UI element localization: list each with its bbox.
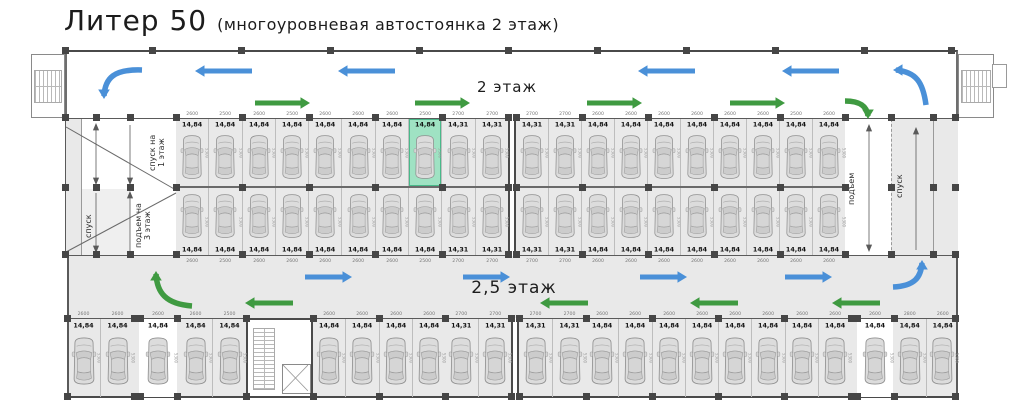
depth-dimension: 5300: [954, 353, 959, 363]
parking-spot[interactable]: 260014,845300: [581, 188, 614, 255]
car-icon: [651, 192, 677, 240]
spot-area-label: 14,84: [349, 322, 375, 329]
column: [505, 184, 512, 191]
parking-spot[interactable]: 260014,845300: [779, 188, 812, 255]
spot-area-label: 14,84: [213, 246, 239, 253]
column: [173, 251, 180, 258]
width-dimension: 2600: [349, 258, 368, 263]
parking-segment: 260014,845300250014,845300: [179, 319, 246, 397]
ramp-area-right: подъем спуск: [845, 119, 957, 255]
spot-area-label: 14,84: [213, 121, 239, 128]
column: [649, 393, 656, 400]
column: [930, 114, 937, 121]
width-dimension: 2600: [688, 258, 707, 263]
column: [137, 315, 144, 322]
column: [62, 114, 69, 121]
parking-spot[interactable]: 260014,845300: [647, 188, 680, 255]
width-dimension: 2500: [216, 258, 235, 263]
parking-row-lower-left: 260014,845300250014,845300260014,8453002…: [176, 188, 508, 255]
spot-area-label: 14,84: [750, 246, 776, 253]
column: [376, 315, 383, 322]
width-dimension: 2600: [820, 258, 839, 263]
spot-area-label: 14,84: [622, 322, 648, 329]
column: [62, 251, 69, 258]
spot-area-label: 14,31: [519, 246, 545, 253]
column: [930, 184, 937, 191]
width-dimension: 2600: [283, 258, 302, 263]
width-dimension: 2500: [787, 111, 806, 116]
parking-spot[interactable]: 270014,315300: [552, 319, 586, 397]
spot-area-label: 14,84: [346, 246, 372, 253]
parking-spot[interactable]: 260014,845300: [926, 319, 959, 397]
width-dimension: 2700: [485, 311, 504, 316]
parking-spot[interactable]: 260014,845300: [345, 319, 378, 397]
exit-landing: [992, 64, 1007, 88]
width-dimension: 2600: [74, 311, 93, 316]
column: [711, 184, 718, 191]
column: [683, 47, 690, 54]
column: [149, 47, 156, 54]
column: [516, 393, 523, 400]
width-dimension: 2700: [556, 111, 575, 116]
width-dimension: 2600: [792, 311, 811, 316]
spot-area-label: 14,84: [182, 322, 208, 329]
car-icon: [479, 133, 505, 181]
column: [327, 47, 334, 54]
spot-area-label: 14,84: [379, 246, 405, 253]
width-dimension: 2500: [216, 111, 235, 116]
spot-area-label: 14,84: [279, 121, 305, 128]
width-dimension: 2600: [787, 258, 806, 263]
ramp-label-down: спуск: [84, 205, 93, 247]
spot-area-label: 14,84: [412, 246, 438, 253]
car-icon: [783, 192, 809, 240]
parking-spot-selected[interactable]: 250014,845300: [408, 119, 441, 186]
column: [772, 47, 779, 54]
car-icon: [588, 332, 616, 390]
parking-spot[interactable]: 260014,845300: [275, 188, 308, 255]
width-dimension: 2600: [593, 311, 612, 316]
column: [842, 184, 849, 191]
parking-spot[interactable]: 260014,845300: [581, 119, 614, 186]
column: [711, 114, 718, 121]
width-dimension: 2600: [622, 258, 641, 263]
car-icon: [721, 332, 749, 390]
width-dimension: 2700: [482, 258, 501, 263]
car-icon: [212, 133, 238, 181]
floor-label-2-5: 2,5 этаж: [466, 278, 562, 298]
car-icon: [481, 332, 509, 390]
parking-segment: 270014,315300270014,315300: [445, 319, 511, 397]
column: [777, 184, 784, 191]
parking-spot[interactable]: 260014,845300: [713, 119, 746, 186]
parking-spot[interactable]: 260014,845300: [746, 188, 779, 255]
column: [952, 393, 959, 400]
width-dimension: 2600: [320, 311, 339, 316]
parking-spot[interactable]: 260014,845300: [614, 119, 647, 186]
column: [93, 251, 100, 258]
car-icon: [655, 332, 683, 390]
width-dimension: 2600: [865, 311, 886, 316]
spot-area-label: 14,84: [585, 246, 611, 253]
width-dimension: 2600: [826, 311, 845, 316]
column: [711, 251, 718, 258]
parking-spot[interactable]: 260014,845300: [176, 119, 208, 186]
spot-area-label: 14,84: [684, 121, 710, 128]
column: [842, 251, 849, 258]
parking-spot[interactable]: 260014,845300: [751, 319, 784, 397]
car-icon: [346, 133, 372, 181]
width-dimension: 2600: [933, 311, 951, 316]
parking-floor-plan: Литер 50 (многоуровневая автостоянка 2 э…: [0, 0, 1024, 410]
parking-spot[interactable]: 260014,845300: [718, 319, 751, 397]
page-title: Литер 50 (многоуровневая автостоянка 2 э…: [64, 4, 559, 37]
width-dimension: 2600: [622, 111, 641, 116]
column: [649, 315, 656, 322]
column: [952, 251, 959, 258]
width-dimension: 2600: [383, 111, 402, 116]
column: [583, 393, 590, 400]
width-dimension: 2600: [693, 311, 712, 316]
column: [239, 184, 246, 191]
width-dimension: 2500: [220, 311, 239, 316]
car-icon: [651, 133, 677, 181]
parking-spot[interactable]: 260014,845300: [618, 319, 651, 397]
column: [948, 47, 955, 54]
parking-spot[interactable]: 260014,845300: [341, 188, 374, 255]
car-icon: [783, 133, 809, 181]
width-dimension: 2600: [186, 311, 205, 316]
parking-spot[interactable]: 260014,845300: [179, 319, 212, 397]
column: [777, 114, 784, 121]
car-icon: [717, 133, 743, 181]
parking-spot[interactable]: 250014,845300: [212, 319, 246, 397]
parking-spot[interactable]: 270014,315300: [519, 319, 552, 397]
column: [579, 114, 586, 121]
column: [891, 315, 898, 322]
car-icon: [246, 192, 272, 240]
parking-spot[interactable]: 260014,845300: [139, 319, 177, 397]
column: [64, 315, 71, 322]
width-dimension: 2600: [249, 258, 268, 263]
spot-area-label: 14,84: [104, 322, 130, 329]
spot-area-label: 14,84: [689, 322, 715, 329]
width-dimension: 2600: [383, 258, 402, 263]
car-icon: [522, 332, 550, 390]
parking-spot[interactable]: 260014,845300: [176, 188, 208, 255]
column: [93, 184, 100, 191]
parking-spot[interactable]: 270014,315300: [475, 119, 508, 186]
depth-dimension: 5300: [847, 353, 852, 363]
car-icon: [821, 332, 849, 390]
parking-segment: 260014,845300: [857, 319, 893, 397]
parking-row-upper-left: 260014,845300250014,845300260014,8453002…: [176, 119, 508, 186]
column: [508, 393, 515, 400]
car-icon: [479, 192, 505, 240]
car-icon: [750, 192, 776, 240]
parking-spot[interactable]: 270014,315300: [478, 319, 512, 397]
column: [127, 184, 134, 191]
parking-spot[interactable]: 270014,315300: [516, 119, 548, 186]
column: [715, 393, 722, 400]
parking-spot[interactable]: 260014,845300: [313, 319, 345, 397]
spot-area-label: 14,84: [379, 121, 405, 128]
width-dimension: 2600: [108, 311, 127, 316]
parking-spot[interactable]: 260014,845300: [242, 119, 275, 186]
parking-spot[interactable]: 250014,845300: [408, 188, 441, 255]
parking-spot[interactable]: 260014,845300: [341, 119, 374, 186]
column: [243, 393, 250, 400]
column: [127, 251, 134, 258]
spot-area-label: 14,84: [279, 246, 305, 253]
spot-area-label: 14,84: [861, 322, 890, 329]
column: [439, 251, 446, 258]
ramp-label-down: спуск: [895, 163, 904, 209]
car-icon: [618, 133, 644, 181]
car-icon: [861, 332, 889, 390]
spot-area-label: 14,84: [143, 322, 173, 329]
width-dimension: 2600: [349, 111, 368, 116]
width-dimension: 2600: [659, 311, 678, 316]
car-icon: [585, 133, 611, 181]
spot-area-label: 14,84: [722, 322, 748, 329]
parking-spot[interactable]: 250014,845300: [275, 119, 308, 186]
column: [306, 251, 313, 258]
expansion-joint: [511, 318, 519, 398]
width-dimension: 2600: [316, 111, 335, 116]
parking-spot[interactable]: 260014,845300: [785, 319, 818, 397]
car-icon: [816, 192, 842, 240]
width-dimension: 2600: [353, 311, 372, 316]
spot-area-label: 14,84: [412, 121, 438, 128]
parking-spot[interactable]: 260014,845300: [375, 188, 408, 255]
spot-area-label: 14,31: [522, 322, 548, 329]
car-icon: [447, 332, 475, 390]
car-icon: [446, 192, 472, 240]
car-icon: [684, 133, 710, 181]
parking-spot[interactable]: 260014,845300: [308, 119, 341, 186]
column: [174, 393, 181, 400]
car-icon: [519, 133, 545, 181]
column: [416, 47, 423, 54]
column: [861, 47, 868, 54]
width-dimension: 2600: [183, 258, 202, 263]
car-icon: [412, 192, 438, 240]
car-icon: [312, 192, 338, 240]
parking-segment: 270014,315300270014,315300: [519, 319, 586, 397]
column: [310, 393, 317, 400]
car-icon: [216, 332, 244, 390]
width-dimension: 2700: [560, 311, 579, 316]
spot-area-label: 14,84: [651, 121, 677, 128]
spot-area-label: 14,31: [556, 322, 582, 329]
column: [594, 47, 601, 54]
parking-spot[interactable]: 260014,845300: [242, 188, 275, 255]
parking-spot[interactable]: 260014,845300: [412, 319, 445, 397]
parking-spot[interactable]: 260014,845300: [746, 119, 779, 186]
parking-spot[interactable]: 260014,845300: [812, 188, 845, 255]
width-dimension: 2500: [416, 111, 435, 116]
depth-dimension: 5300: [504, 147, 509, 157]
parking-spot[interactable]: 270014,315300: [445, 319, 478, 397]
spot-area-label: 14,31: [446, 246, 472, 253]
depth-dimension: 5300: [130, 353, 135, 363]
parking-spot[interactable]: 260014,845300: [647, 119, 680, 186]
parking-spot[interactable]: 260014,845300: [812, 119, 845, 186]
car-icon: [279, 192, 305, 240]
spot-area-label: 14,84: [346, 121, 372, 128]
parking-spot[interactable]: 250014,845300: [208, 119, 241, 186]
spot-area-label: 14,84: [717, 246, 743, 253]
floor-label-2: 2 этаж: [462, 78, 552, 96]
spot-area-label: 14,84: [246, 121, 272, 128]
parking-spot[interactable]: 250014,845300: [779, 119, 812, 186]
car-icon: [182, 332, 210, 390]
ramp-label-down-1: спуск на 1 этаж: [148, 129, 166, 177]
title-main: Литер 50: [64, 4, 207, 37]
parking-spot[interactable]: 260014,845300: [818, 319, 851, 397]
car-icon: [246, 133, 272, 181]
width-dimension: 2600: [655, 111, 674, 116]
spot-area-label: 14,31: [482, 322, 508, 329]
column: [372, 184, 379, 191]
spot-area-label: 14,84: [783, 121, 809, 128]
column: [645, 184, 652, 191]
column: [513, 184, 520, 191]
column: [442, 393, 449, 400]
spot-area-label: 14,84: [717, 121, 743, 128]
spot-area-label: 14,84: [930, 322, 955, 329]
column: [239, 251, 246, 258]
column: [930, 251, 937, 258]
parking-spot[interactable]: 270014,315300: [548, 119, 581, 186]
parking-spot[interactable]: 270014,315300: [475, 188, 508, 255]
parking-spot[interactable]: 260014,845300: [100, 319, 134, 397]
parking-spot[interactable]: 250014,845300: [208, 188, 241, 255]
car-icon: [144, 332, 172, 390]
staircase: [961, 70, 991, 103]
parking-spot[interactable]: 260014,845300: [379, 319, 412, 397]
column: [243, 315, 250, 322]
spot-area-label: 14,84: [816, 121, 842, 128]
column: [842, 114, 849, 121]
spot-area-label: 14,31: [552, 121, 578, 128]
car-icon: [412, 133, 438, 181]
parking-spot[interactable]: 270014,315300: [441, 188, 474, 255]
column: [505, 47, 512, 54]
parking-spot[interactable]: 260014,845300: [680, 188, 713, 255]
width-dimension: 2500: [283, 111, 302, 116]
width-dimension: 2600: [626, 311, 645, 316]
column: [508, 315, 515, 322]
width-dimension: 2700: [526, 311, 545, 316]
car-icon: [618, 192, 644, 240]
column: [516, 315, 523, 322]
spot-area-label: 14,84: [755, 322, 781, 329]
parking-segment: 260014,845300: [139, 319, 177, 397]
parking-spot[interactable]: 270014,315300: [548, 188, 581, 255]
car-icon: [382, 332, 410, 390]
parking-spot[interactable]: 260014,845300: [586, 319, 618, 397]
column: [306, 114, 313, 121]
column: [137, 393, 144, 400]
depth-dimension: 5300: [504, 216, 509, 226]
parking-spot[interactable]: 260014,845300: [685, 319, 718, 397]
spot-area-label: 14,31: [519, 121, 545, 128]
car-icon: [717, 192, 743, 240]
stair-annex-left: [31, 54, 65, 118]
parking-spot[interactable]: 260014,845300: [652, 319, 685, 397]
spot-area-label: 14,84: [585, 121, 611, 128]
spot-area-label: 14,84: [789, 322, 815, 329]
parking-spot[interactable]: 260014,845300: [857, 319, 893, 397]
column: [442, 315, 449, 322]
parking-row-upper-right: 270014,315300270014,315300260014,8453002…: [516, 119, 845, 186]
parking-spot[interactable]: 260014,845300: [375, 119, 408, 186]
width-dimension: 2500: [416, 258, 435, 263]
parking-spot[interactable]: 260014,845300: [680, 119, 713, 186]
car-icon: [279, 133, 305, 181]
column: [173, 114, 180, 121]
car-icon: [688, 332, 716, 390]
spot-area-label: 14,84: [416, 322, 442, 329]
column: [952, 114, 959, 121]
width-dimension: 2700: [556, 258, 575, 263]
column: [854, 315, 861, 322]
spot-area-label: 14,31: [446, 121, 472, 128]
column: [238, 47, 245, 54]
parking-spot[interactable]: 260014,845300: [308, 188, 341, 255]
width-dimension: 2600: [316, 258, 335, 263]
width-dimension: 2600: [721, 111, 740, 116]
elevator-shaft: [282, 364, 311, 394]
car-icon: [750, 133, 776, 181]
parking-segment: 280014,845300260014,845300: [894, 319, 958, 397]
car-icon: [348, 332, 376, 390]
width-dimension: 2600: [820, 111, 839, 116]
column: [777, 251, 784, 258]
car-icon: [754, 332, 782, 390]
width-dimension: 2600: [386, 311, 405, 316]
spot-area-label: 14,84: [783, 246, 809, 253]
column: [952, 184, 959, 191]
parking-spot[interactable]: 270014,315300: [516, 188, 548, 255]
spot-area-label: 14,84: [179, 246, 205, 253]
column: [376, 393, 383, 400]
width-dimension: 2600: [420, 311, 439, 316]
width-dimension: 2700: [482, 111, 501, 116]
depth-dimension: 5300: [841, 216, 846, 226]
depth-dimension: 5300: [841, 147, 846, 157]
parking-spot[interactable]: 280014,845300: [894, 319, 926, 397]
parking-spot[interactable]: 260014,845300: [67, 319, 100, 397]
width-dimension: 2600: [183, 111, 202, 116]
spot-area-label: 14,84: [822, 322, 848, 329]
column: [505, 251, 512, 258]
column: [372, 114, 379, 121]
parking-row-lower-right: 270014,315300270014,315300260014,8453002…: [516, 188, 845, 255]
spot-area-label: 14,84: [316, 322, 342, 329]
parking-segment: 260014,845300260014,845300: [67, 319, 134, 397]
width-dimension: 2600: [726, 311, 745, 316]
parking-spot[interactable]: 270014,315300: [441, 119, 474, 186]
parking-spot[interactable]: 260014,845300: [713, 188, 746, 255]
spot-area-label: 14,84: [651, 246, 677, 253]
column: [854, 393, 861, 400]
car-icon: [621, 332, 649, 390]
column: [505, 114, 512, 121]
parking-spot[interactable]: 260014,845300: [614, 188, 647, 255]
